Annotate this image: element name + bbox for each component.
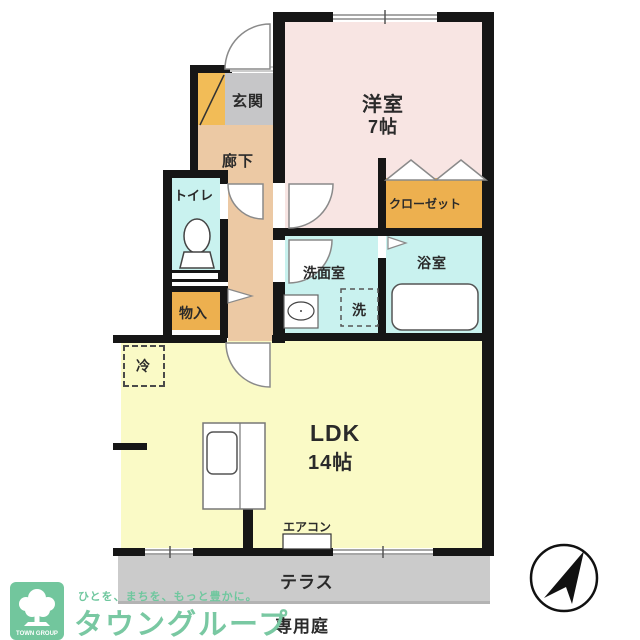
wall	[113, 548, 145, 556]
wall	[220, 286, 228, 338]
wall	[163, 286, 228, 292]
wall	[285, 333, 494, 341]
wall	[378, 258, 386, 333]
hallway-strip-floor	[228, 177, 273, 343]
western-room-size: 7帖	[368, 113, 398, 139]
wall	[193, 548, 333, 556]
wall	[220, 219, 228, 282]
wall	[273, 228, 285, 240]
hallway-label: 廊下	[222, 150, 254, 171]
town-group-logo: TOWN GROUP	[10, 582, 64, 640]
bathroom-floor	[386, 236, 482, 333]
fridge-space: 冷	[123, 345, 165, 387]
entrance-label: 玄関	[232, 90, 264, 111]
toilet-label: トイレ	[174, 185, 213, 204]
storage-label: 物入	[179, 303, 207, 323]
wall	[163, 170, 172, 338]
aircon-label: エアコン	[283, 518, 331, 535]
terrace-label: テラス	[280, 568, 334, 593]
wall	[482, 12, 494, 556]
washer-label: 洗	[352, 300, 367, 320]
shoebox	[198, 73, 225, 127]
ldk-size: 14帖	[308, 446, 353, 475]
wall	[273, 282, 285, 335]
wall	[378, 158, 386, 236]
wall-kitchen-partition	[243, 509, 253, 548]
compass-icon	[531, 545, 597, 611]
wall	[190, 65, 198, 177]
ldk-label: LDK	[310, 420, 360, 447]
brand-name: タウングループ	[74, 601, 289, 640]
closet-label: クローゼット	[389, 195, 461, 212]
ldk-floor	[121, 341, 482, 548]
fridge-label: 冷	[136, 356, 151, 376]
washroom-label: 洗面室	[303, 263, 345, 283]
entrance-door-icon	[225, 24, 273, 72]
logo-text: TOWN GROUP	[10, 631, 64, 637]
wall-slot	[172, 273, 218, 279]
wall	[273, 12, 285, 183]
floorplan-page: 玄関 廊下 洋室 7帖 クローゼット トイレ 洗面室 洗 浴室 物入 LDK 1…	[0, 0, 640, 640]
bathroom-label: 浴室	[417, 253, 447, 273]
wall	[220, 170, 228, 184]
wall	[272, 335, 285, 343]
wall-stub	[113, 443, 147, 450]
